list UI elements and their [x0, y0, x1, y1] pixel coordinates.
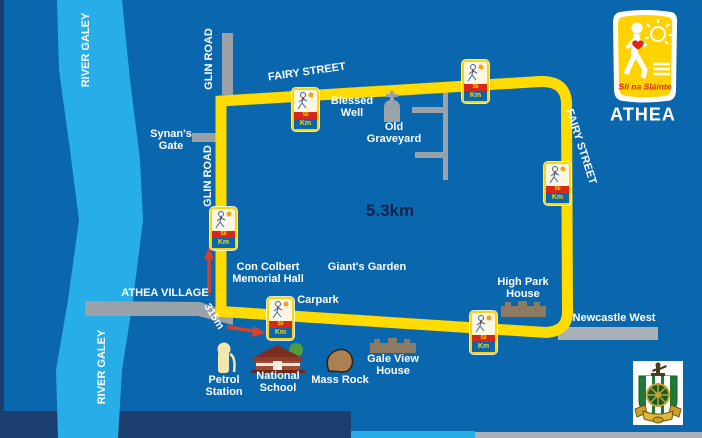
blessed-well-label: Blessed Well — [331, 96, 373, 120]
km-marker-figure-icon — [212, 209, 235, 231]
sli-na-slainte-logo: Slí na Sláinte — [612, 10, 678, 103]
crest-artwork — [633, 361, 683, 425]
km-marker-6: Slí Km — [470, 311, 497, 354]
km-marker-km-label: Km — [546, 193, 569, 203]
km-marker-sli-label: Slí — [212, 231, 235, 238]
route-distance-label: 5.3km — [366, 202, 414, 220]
newcastle-west-label: Newcastle West — [573, 313, 656, 325]
km-marker-3: Slí Km — [544, 162, 571, 205]
km-marker-sli-label: Slí — [294, 112, 317, 119]
bottom-navy-band — [0, 411, 351, 438]
town-name-label: ATHEA — [610, 105, 676, 124]
high-park-house-label: High Park House — [497, 277, 548, 301]
newcastle-west-road — [558, 327, 658, 340]
left-edge-band — [0, 0, 4, 438]
athea-crest — [633, 361, 683, 425]
graveyard-lane-vertical — [443, 88, 448, 180]
start-arrow-right — [227, 326, 266, 337]
synans-gate-label: Synan's Gate — [150, 129, 192, 153]
bottom-cyan-sliver — [351, 431, 475, 438]
km-marker-2: Slí Km — [462, 60, 489, 103]
national-school-label: National School — [256, 371, 299, 395]
graveyard-lane-upper — [412, 107, 448, 113]
graveyard-icon — [384, 91, 400, 122]
km-marker-km-label: Km — [294, 119, 317, 129]
river-label-top: RIVER GALEY — [81, 13, 93, 88]
km-marker-sli-label: Slí — [269, 321, 292, 328]
km-marker-1: Slí Km — [292, 88, 319, 131]
km-marker-figure-icon — [464, 62, 487, 84]
high-park-house-icon — [501, 301, 546, 317]
synans-gate-stub — [192, 133, 217, 142]
km-marker-km-label: Km — [269, 328, 292, 338]
km-marker-km-label: Km — [464, 91, 487, 101]
km-marker-sli-label: Slí — [546, 186, 569, 193]
km-marker-figure-icon — [546, 164, 569, 186]
km-marker-5: Slí Km — [267, 297, 294, 340]
carpark-label: Carpark — [297, 295, 339, 307]
glin-road-stub — [222, 33, 233, 95]
petrol-station-label: Petrol Station — [205, 375, 242, 399]
glin-road-label-lower: GLIN ROAD — [203, 145, 215, 207]
graveyard-lane-lower — [415, 152, 448, 158]
mass-rock-icon — [327, 349, 352, 372]
gale-view-house-label: Gale View House — [367, 354, 419, 378]
athea-sli-na-slainte-map: Slí Km Slí Km Slí Km Slí Km Slí Km Slí K… — [0, 0, 702, 438]
km-marker-figure-icon — [269, 299, 292, 321]
petrol-pump-icon — [218, 343, 235, 374]
km-marker-km-label: Km — [212, 238, 235, 248]
old-graveyard-label: Old Graveyard — [367, 122, 421, 146]
km-marker-4: Slí Km — [210, 207, 237, 250]
national-school-icon — [251, 343, 305, 373]
km-marker-figure-icon — [294, 90, 317, 112]
mass-rock-label: Mass Rock — [311, 375, 368, 387]
glin-road-label-upper: GLIN ROAD — [204, 28, 216, 90]
crest-wheel-icon — [647, 384, 669, 406]
gale-view-house-icon — [370, 338, 416, 353]
km-marker-figure-icon — [472, 313, 495, 335]
giants-garden-label: Giant's Garden — [328, 262, 406, 274]
km-marker-sli-label: Slí — [464, 84, 487, 91]
km-marker-sli-label: Slí — [472, 335, 495, 342]
crest-figure-icon — [651, 363, 667, 377]
bottom-gray-sliver — [475, 432, 702, 438]
km-marker-km-label: Km — [472, 342, 495, 352]
con-colbert-label: Con Colbert Memorial Hall — [232, 262, 304, 286]
athea-village-label: ATHEA VILLAGE — [121, 288, 208, 300]
river-label-bottom: RIVER GALEY — [97, 330, 109, 405]
logo-name-label: Slí na Sláinte — [619, 82, 672, 91]
